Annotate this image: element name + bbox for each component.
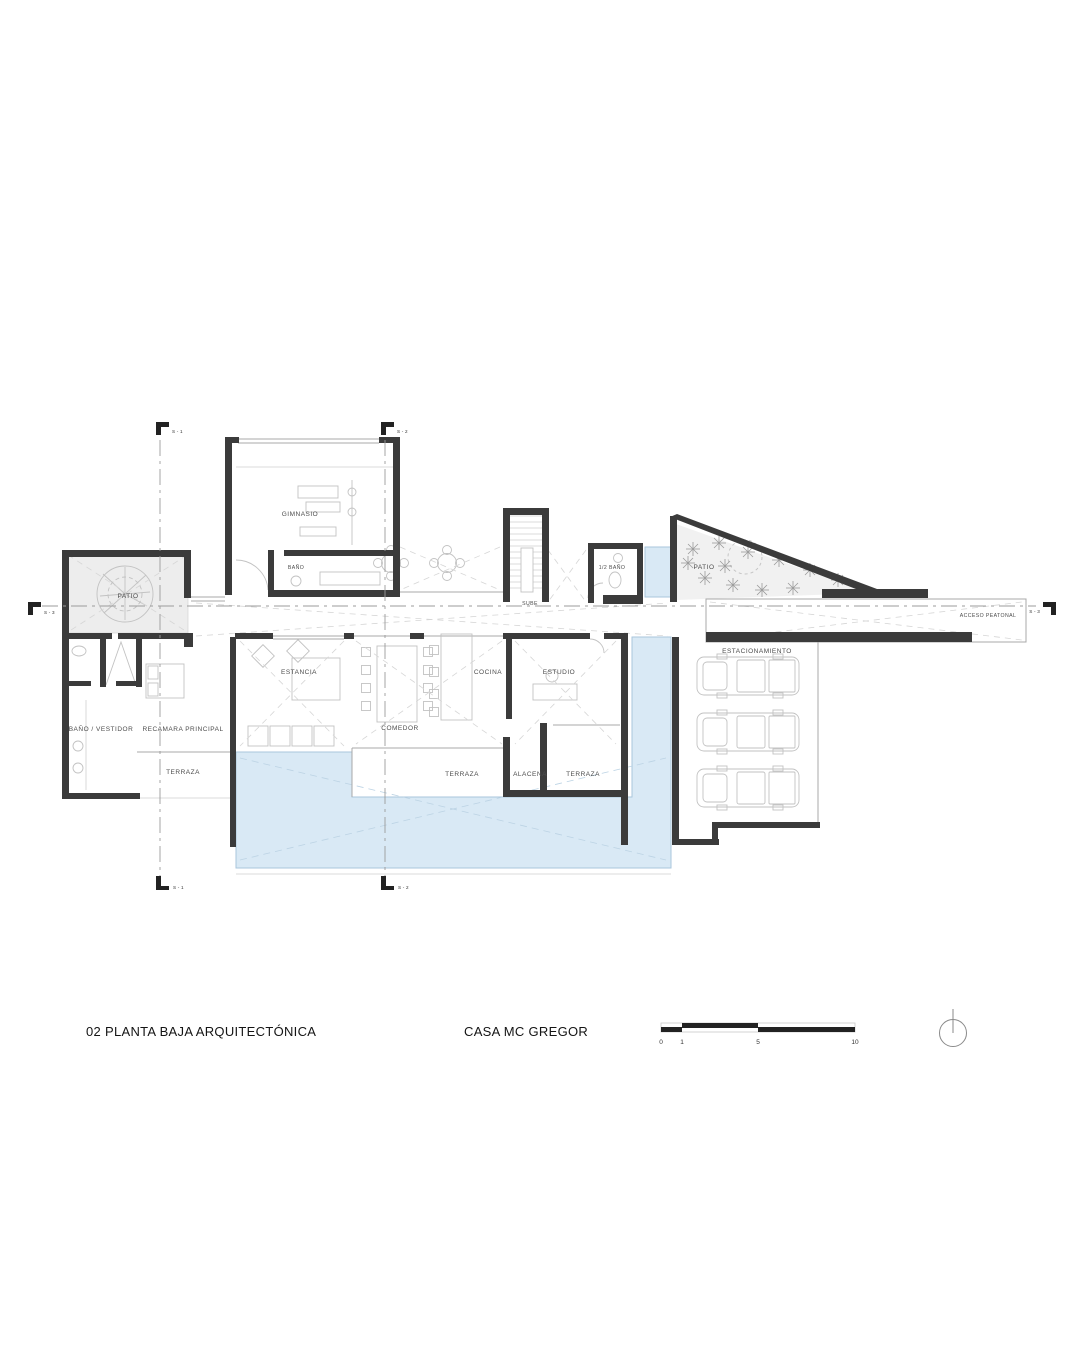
room-label-banio-vestidor: BAÑO / VESTIDOR [69, 724, 134, 733]
room-label-alacena: ALACENA [513, 771, 547, 778]
kitchen-island [430, 634, 473, 720]
project-name: CASA MC GREGOR [464, 1024, 588, 1039]
dining-set [362, 646, 433, 722]
section-marker-s3-right: S - 3 [1029, 602, 1056, 615]
section-marker-s3-left: S - 3 [28, 602, 55, 615]
section-marker-s2-bottom: S - 2 [381, 876, 409, 890]
room-label-patio-left: PATIO [117, 593, 138, 600]
staircase [510, 516, 542, 592]
section-label: S - 3 [44, 610, 55, 615]
room-label-estacionamiento: ESTACIONAMIENTO [722, 648, 792, 655]
patio-access-floor [676, 524, 870, 600]
scale-tick: 0 [659, 1039, 663, 1046]
room-label-terraza-mid: TERRAZA [445, 771, 479, 778]
room-label-gimnasio: GIMNASIO [282, 511, 319, 518]
room-label-terraza-left: TERRAZA [166, 769, 200, 776]
room-label-recamara: RECAMARA PRINCIPAL [142, 726, 223, 733]
parked-cars [697, 654, 799, 810]
scale-tick: 10 [851, 1039, 859, 1046]
room-label-medio-banio: 1/2 BAÑO [599, 564, 626, 571]
scale-tick: 5 [756, 1039, 760, 1046]
room-label-terraza-right: TERRAZA [566, 771, 600, 778]
section-label: S - 1 [172, 429, 183, 434]
section-label: S - 3 [1029, 609, 1040, 614]
section-marker-s2-top: S - 2 [381, 422, 408, 435]
section-label: S - 1 [173, 885, 184, 890]
room-label-estancia: ESTANCIA [281, 669, 317, 676]
walls [62, 437, 972, 847]
section-label: S - 2 [397, 429, 408, 434]
floor-plan-canvas: S - 1 S - 2 S - 1 S - 2 S - 3 S - 3 PATI… [0, 0, 1080, 1350]
room-label-patio-access: PATIO [693, 564, 714, 571]
room-label-banio-gym: BAÑO [288, 564, 304, 571]
room-label-estudio: ESTUDIO [543, 669, 575, 676]
room-label-sube: SUBE [522, 601, 538, 607]
scale-bar: 0 1 5 10 [659, 1023, 859, 1046]
title-block: 02 PLANTA BAJA ARQUITECTÓNICA CASA MC GR… [86, 1009, 967, 1047]
section-marker-s1-top: S - 1 [156, 422, 183, 435]
bed-sketch [146, 664, 184, 698]
north-arrow-icon [940, 1009, 967, 1047]
room-label-comedor: COMEDOR [381, 725, 418, 732]
section-label: S - 2 [398, 885, 409, 890]
room-label-cocina: COCINA [474, 669, 502, 676]
room-label-acceso-peatonal: ACCESO PEATONAL [960, 613, 1017, 619]
living-furniture [248, 640, 340, 746]
drawing-title: 02 PLANTA BAJA ARQUITECTÓNICA [86, 1024, 316, 1039]
section-marker-s1-bottom: S - 1 [156, 876, 184, 890]
scale-tick: 1 [680, 1039, 684, 1046]
sketch-layer [72, 439, 1026, 822]
